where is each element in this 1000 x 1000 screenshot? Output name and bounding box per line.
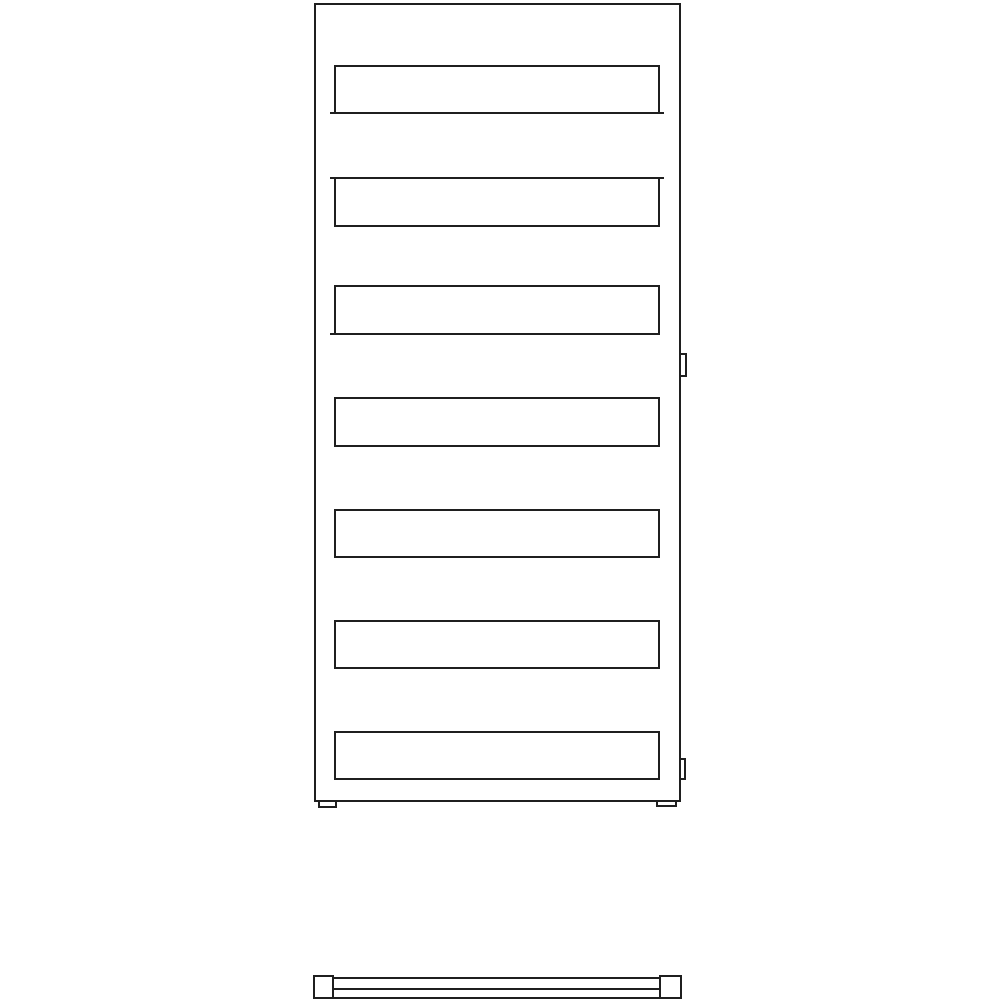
plan-bar-inner-line bbox=[334, 988, 659, 990]
technical-drawing-canvas bbox=[0, 0, 1000, 1000]
plan-end-cap-left bbox=[313, 975, 334, 999]
plan-end-cap-right bbox=[659, 975, 682, 999]
radiator-plan-view bbox=[0, 0, 1000, 1000]
